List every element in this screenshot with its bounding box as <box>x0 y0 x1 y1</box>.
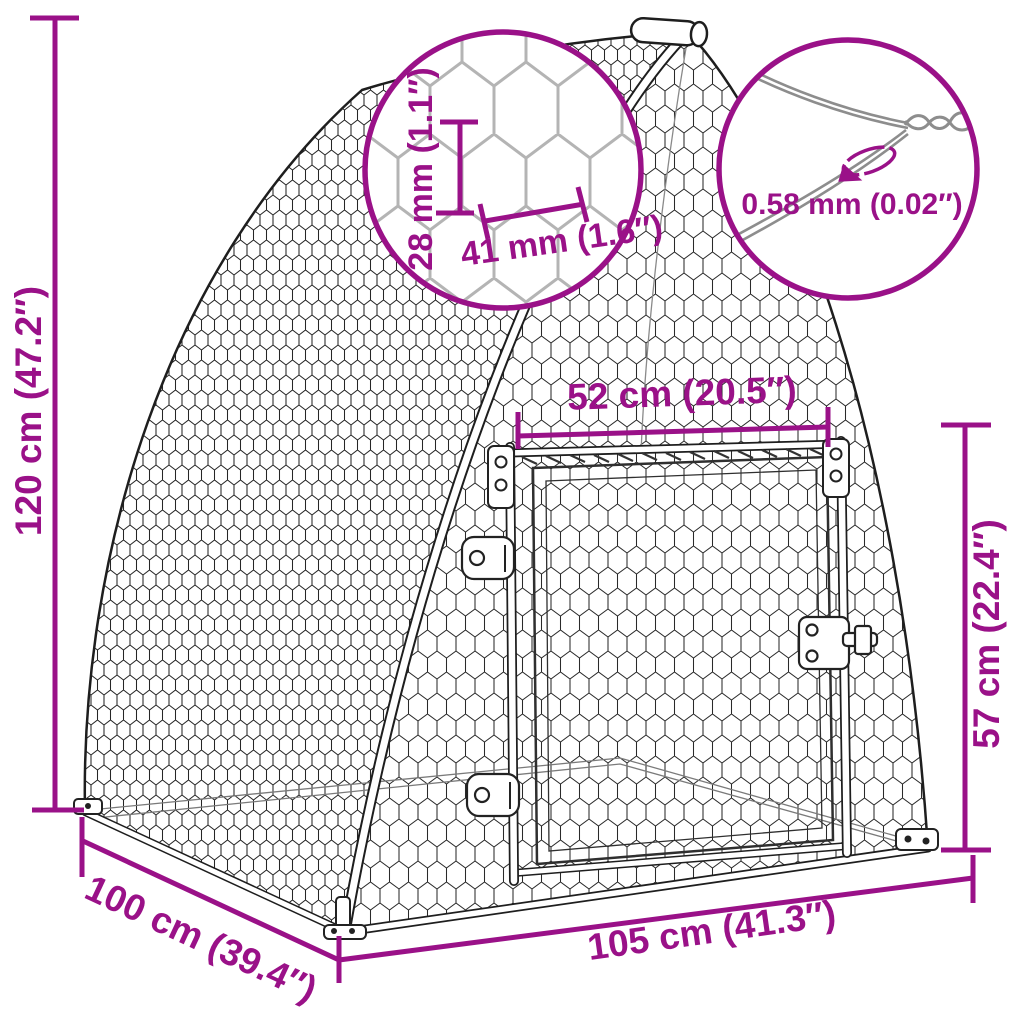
product-dimension-diagram: 28 mm (1.1″) 41 mm (1.6″) 0.58 mm (0.02″… <box>0 0 1024 1024</box>
corner-foot-front-right <box>896 829 938 850</box>
door-hinge-lower <box>467 774 519 816</box>
door-height-label: 57 cm (22.4″) <box>966 519 1007 749</box>
diagram-canvas: 28 mm (1.1″) 41 mm (1.6″) 0.58 mm (0.02″… <box>0 0 1024 1024</box>
mesh-cell-height-label: 28 mm (1.1″) <box>402 67 440 270</box>
base-width-label: 105 cm (41.3″) <box>585 893 838 968</box>
door-bracket-left <box>488 446 514 508</box>
ridge-pole <box>630 17 707 46</box>
door-width-label: 52 cm (20.5″) <box>566 369 797 418</box>
overall-height-label: 120 cm (47.2″) <box>8 286 49 536</box>
door-bracket-right <box>823 439 849 497</box>
door-hinge-upper <box>462 537 514 579</box>
wire-detail-callout: 0.58 mm (0.02″) <box>718 40 977 298</box>
wire-thickness-label: 0.58 mm (0.02″) <box>741 188 962 221</box>
